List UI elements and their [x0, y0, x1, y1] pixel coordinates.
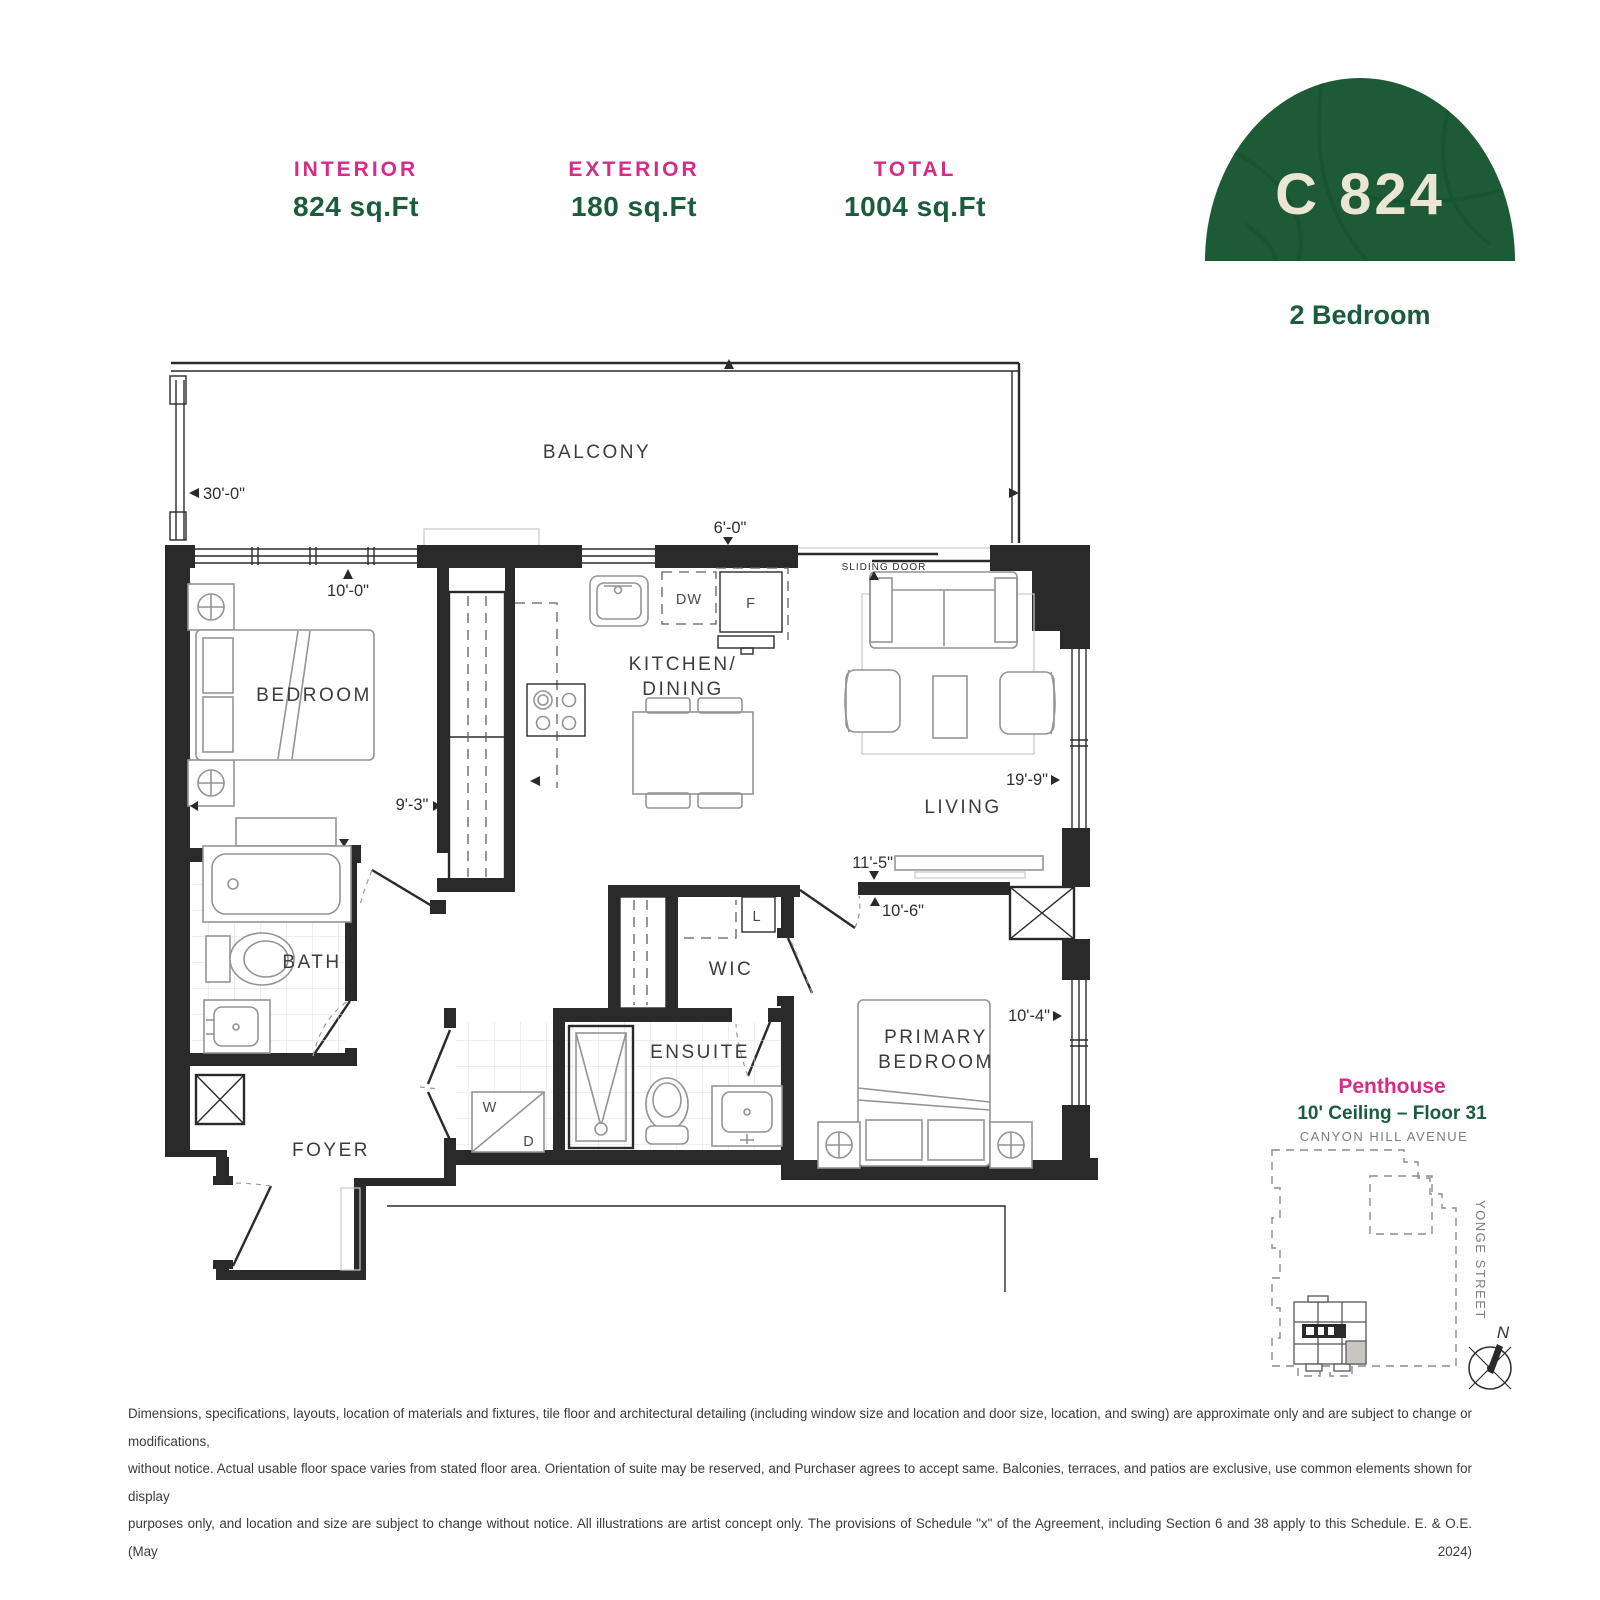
label-dishwasher: DW [676, 592, 702, 608]
keyplan: Penthouse 10' Ceiling – Floor 31 CANYON … [1272, 1075, 1511, 1389]
keyplan-street-right: YONGE STREET [1473, 1200, 1488, 1320]
living-furniture [845, 572, 1055, 878]
room-label-bedroom: BEDROOM [256, 685, 372, 706]
dim-primary-depth: 10'-4" [1008, 1007, 1050, 1025]
room-label-ensuite: ENSUITE [650, 1042, 750, 1063]
bedroom-wardrobe [449, 592, 505, 881]
label-fridge: F [746, 596, 756, 612]
dim-balcony-width: 30'-0" [203, 485, 245, 503]
room-label-kitchen2: DINING [642, 679, 724, 700]
disclaimer-line1: Dimensions, specifications, layouts, loc… [128, 1400, 1472, 1455]
label-washer: W [483, 1100, 498, 1116]
floorplan-page: INTERIOR 824 sq.Ft EXTERIOR 180 sq.Ft TO… [0, 0, 1600, 1600]
keyplan-building-footprint [1294, 1296, 1366, 1371]
disclaimer-line2: without notice. Actual usable floor spac… [128, 1455, 1472, 1510]
dim-living-width: 11'-5" [852, 854, 893, 872]
keyplan-future-block [1370, 1176, 1432, 1234]
disclaimer-line3: purposes only, and location and size are… [128, 1510, 1472, 1565]
room-label-living: LIVING [924, 797, 1001, 818]
room-label-bath: BATH [282, 952, 341, 973]
label-linen: L [752, 909, 761, 925]
label-dryer: D [523, 1134, 534, 1150]
compass-north: N [1497, 1323, 1510, 1342]
dim-bedroom-width: 9'-3" [396, 796, 429, 814]
bedroom-furniture [188, 584, 374, 846]
room-label-balcony: BALCONY [543, 442, 651, 463]
room-label-foyer: FOYER [292, 1140, 370, 1161]
dim-kitchen: 6'-0" [714, 519, 747, 537]
hall-closet [620, 897, 666, 1008]
keyplan-title: Penthouse [1338, 1075, 1445, 1098]
room-label-wic: WIC [709, 959, 753, 980]
floorplan-drawing: 30'-0" BALCONY [0, 0, 1600, 1600]
primary-furniture [818, 1000, 1032, 1168]
disclaimer: Dimensions, specifications, layouts, loc… [128, 1400, 1472, 1565]
dim-primary-width: 10'-6" [882, 902, 924, 920]
dining-furniture [633, 698, 753, 808]
room-label-primary2: BEDROOM [878, 1052, 994, 1073]
keyplan-unit-highlight [1346, 1341, 1366, 1364]
room-label-primary1: PRIMARY [884, 1027, 988, 1048]
dim-bedroom-depth: 10'-0" [327, 582, 369, 600]
keyplan-street-top: CANYON HILL AVENUE [1300, 1129, 1469, 1144]
keyplan-subtitle: 10' Ceiling – Floor 31 [1297, 1103, 1487, 1124]
balcony: 30'-0" BALCONY [170, 359, 1019, 546]
compass: N [1469, 1323, 1511, 1389]
room-label-kitchen1: KITCHEN/ [629, 654, 738, 675]
dim-living-depth: 19'-9" [1006, 771, 1048, 789]
